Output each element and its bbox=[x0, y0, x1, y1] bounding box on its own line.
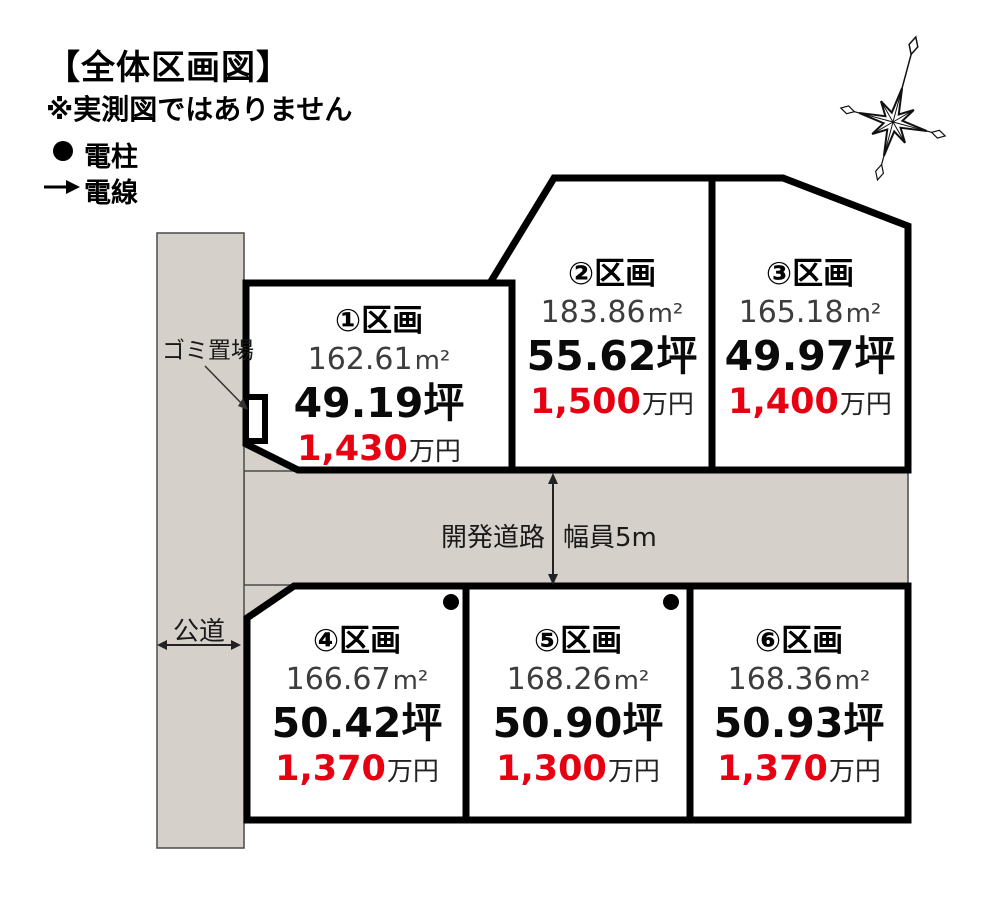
lot-1-label: ①区画 162.61m² 49.19坪 1,430万円 bbox=[294, 300, 465, 476]
survey-note: ※実測図ではありません bbox=[46, 88, 352, 128]
lot-number: ⑥区画 bbox=[714, 620, 885, 662]
lot-3-label: ③区画 165.18m² 49.97坪 1,400万円 bbox=[725, 253, 896, 429]
road-width-label: 幅員5m bbox=[563, 517, 657, 554]
lot-price: 1,430万円 bbox=[294, 428, 465, 476]
lot-price: 1,500万円 bbox=[527, 381, 698, 429]
lot-2-label: ②区画 183.86m² 55.62坪 1,500万円 bbox=[527, 253, 698, 429]
public-road-label: 公道 bbox=[173, 611, 225, 648]
lot-area: 162.61m² bbox=[294, 342, 465, 379]
wire-arrow-icon bbox=[42, 178, 80, 196]
lot-number: ①区画 bbox=[294, 300, 465, 342]
lot-price: 1,300万円 bbox=[493, 748, 664, 796]
lot-tsubo: 50.90坪 bbox=[493, 699, 664, 747]
dev-road-label: 開発道路 bbox=[345, 517, 545, 554]
garbage-area-label: ゴミ置場 bbox=[162, 331, 254, 365]
lot-area: 166.67m² bbox=[272, 662, 443, 699]
lot-number: ②区画 bbox=[527, 253, 698, 295]
legend-wire-label: 電線 bbox=[84, 171, 138, 210]
lot-6-label: ⑥区画 168.36m² 50.93坪 1,370万円 bbox=[714, 620, 885, 796]
lot-5-label: ⑤区画 168.26m² 50.90坪 1,300万円 bbox=[493, 620, 664, 796]
utility-pole-dot-2 bbox=[663, 594, 679, 610]
lot-area: 168.36m² bbox=[714, 662, 885, 699]
pole-dot-icon bbox=[53, 141, 73, 161]
lot-price: 1,370万円 bbox=[714, 748, 885, 796]
lot-tsubo: 55.62坪 bbox=[527, 332, 698, 380]
lot-number: ③区画 bbox=[725, 253, 896, 295]
lot-area: 183.86m² bbox=[527, 295, 698, 332]
garbage-area-shape bbox=[246, 397, 265, 441]
legend-pole-label: 電柱 bbox=[84, 135, 138, 174]
lot-number: ④区画 bbox=[272, 620, 443, 662]
lot-tsubo: 50.42坪 bbox=[272, 699, 443, 747]
lot-price: 1,370万円 bbox=[272, 748, 443, 796]
lot-price: 1,400万円 bbox=[725, 381, 896, 429]
lot-4-label: ④区画 166.67m² 50.42坪 1,370万円 bbox=[272, 620, 443, 796]
lot-area: 168.26m² bbox=[493, 662, 664, 699]
compass-rose-icon bbox=[825, 23, 968, 194]
page-title: 【全体区画図】 bbox=[46, 40, 291, 89]
lot-tsubo: 49.97坪 bbox=[725, 332, 896, 380]
lot-tsubo: 49.19坪 bbox=[294, 379, 465, 427]
lot-tsubo: 50.93坪 bbox=[714, 699, 885, 747]
lot-number: ⑤区画 bbox=[493, 620, 664, 662]
utility-pole-dot-1 bbox=[443, 594, 459, 610]
lot-area: 165.18m² bbox=[725, 295, 896, 332]
public-road-shape bbox=[157, 233, 244, 848]
